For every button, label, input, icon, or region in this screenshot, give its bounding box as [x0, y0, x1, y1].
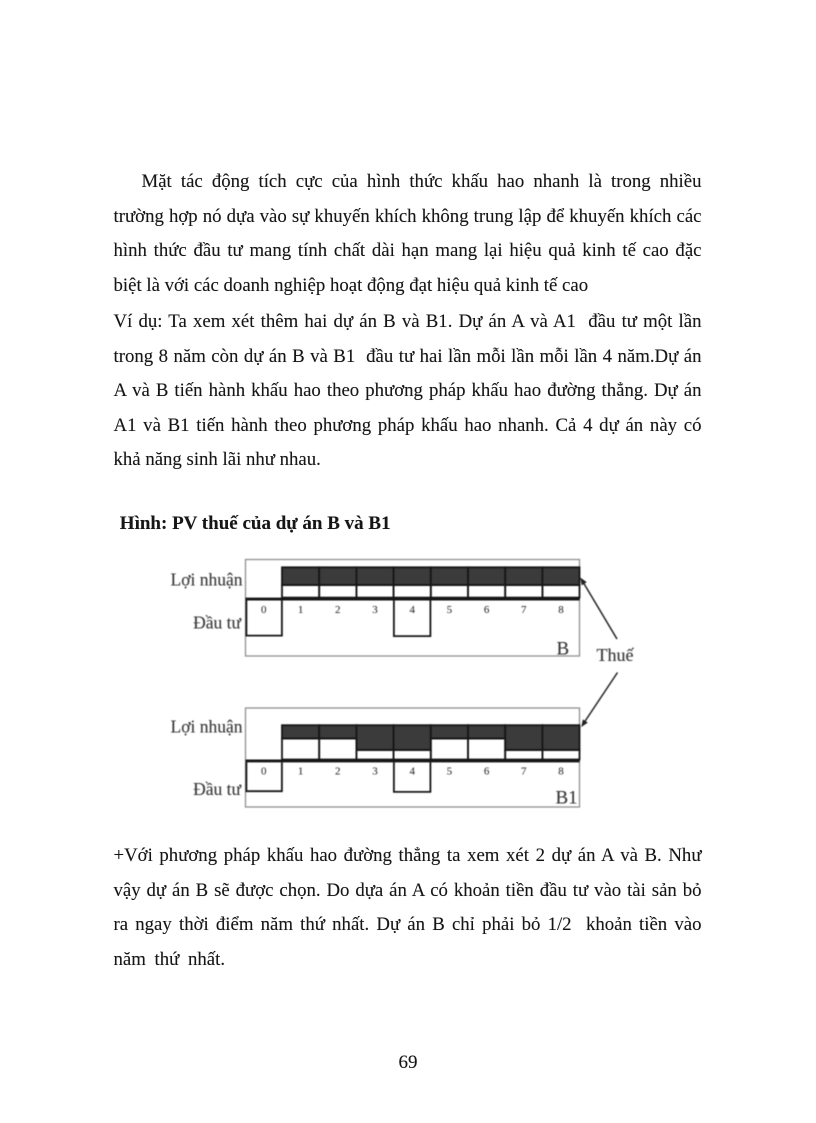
svg-text:Đầu tư: Đầu tư — [193, 613, 241, 633]
svg-text:Đầu tư: Đầu tư — [193, 779, 241, 799]
svg-text:5: 5 — [447, 604, 453, 616]
svg-text:2: 2 — [335, 766, 341, 778]
svg-text:Thuế: Thuế — [597, 645, 635, 665]
svg-text:4: 4 — [409, 604, 415, 616]
svg-text:1: 1 — [298, 766, 304, 778]
svg-text:5: 5 — [447, 766, 453, 778]
svg-text:2: 2 — [335, 604, 341, 616]
svg-text:1: 1 — [298, 604, 304, 616]
svg-text:0: 0 — [261, 766, 267, 778]
svg-text:8: 8 — [558, 766, 564, 778]
svg-text:Lợi nhuận: Lợi nhuận — [171, 717, 243, 737]
svg-text:4: 4 — [409, 766, 415, 778]
svg-text:B1: B1 — [556, 788, 578, 809]
svg-text:6: 6 — [484, 766, 490, 778]
svg-text:7: 7 — [521, 604, 527, 616]
svg-text:0: 0 — [261, 604, 267, 616]
svg-text:3: 3 — [372, 604, 378, 616]
svg-text:Lợi nhuận: Lợi nhuận — [171, 570, 243, 590]
svg-text:8: 8 — [558, 604, 564, 616]
svg-text:7: 7 — [521, 766, 527, 778]
svg-text:3: 3 — [372, 766, 378, 778]
svg-text:B: B — [557, 639, 570, 660]
svg-text:6: 6 — [484, 604, 490, 616]
